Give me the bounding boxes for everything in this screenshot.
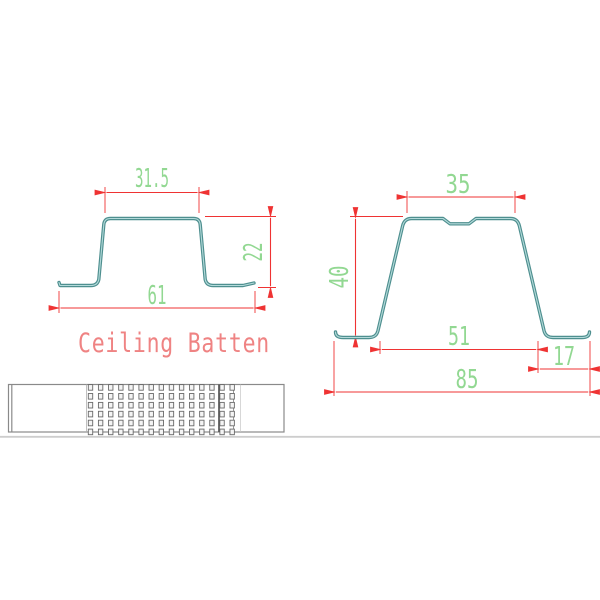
strip-outline	[9, 385, 285, 433]
dim-text-top-width-right: 35	[446, 170, 471, 200]
perforation-slot	[109, 429, 113, 435]
perforation-slot	[179, 420, 183, 426]
perforation-slot	[169, 429, 173, 435]
dim-text-bottom-width-left: 61	[148, 281, 167, 311]
dim-text-inner-width-right: 51	[448, 322, 470, 352]
perforation-slot	[139, 420, 143, 426]
perforation-slot	[200, 420, 204, 426]
perforation-slot	[129, 420, 133, 426]
perforation-slot	[88, 411, 92, 417]
perforation-slot	[220, 394, 224, 400]
perforation-slot	[139, 411, 143, 417]
perforation-slot	[149, 402, 153, 408]
perforation-slot	[98, 394, 102, 400]
technical-drawing: 31.5 22 61 35 40 51 17 85 Ceiling Batten	[0, 0, 600, 600]
perforation-slot	[169, 420, 173, 426]
perforation-slot	[220, 411, 224, 417]
left-profile-outline	[59, 219, 254, 286]
perforation-slot	[230, 429, 234, 435]
perforation-slot	[200, 394, 204, 400]
perforation-slot	[210, 420, 214, 426]
perforation-slot	[179, 385, 183, 391]
left-profile-core	[59, 219, 254, 286]
perforation-slot	[149, 385, 153, 391]
perforation-slot	[109, 394, 113, 400]
perforation-slot	[210, 402, 214, 408]
perforation-slot	[98, 420, 102, 426]
perforation-slot	[230, 411, 234, 417]
perforation-slot	[169, 402, 173, 408]
perforation-slot	[179, 429, 183, 435]
perforation-slot	[169, 394, 173, 400]
perforation-slot	[139, 385, 143, 391]
perforation-slot	[109, 402, 113, 408]
perforation-slot	[139, 394, 143, 400]
perforation-slot	[129, 411, 133, 417]
perforation-slot	[109, 411, 113, 417]
perforation-slot	[149, 394, 153, 400]
perforation-slot	[220, 385, 224, 391]
perforation-slot	[109, 385, 113, 391]
perforation-slot	[179, 394, 183, 400]
perforation-slot	[169, 411, 173, 417]
perforation-slot	[230, 402, 234, 408]
perforation-slot	[159, 420, 163, 426]
perforation-slot	[149, 429, 153, 435]
left-profile-caption: Ceiling Batten	[78, 328, 270, 359]
perforation-slot	[149, 420, 153, 426]
perforation-slot	[220, 420, 224, 426]
perforation-slot	[210, 394, 214, 400]
perforation-slot	[159, 385, 163, 391]
perforation-slot	[98, 402, 102, 408]
dim-text-total-width-right: 85	[456, 365, 479, 395]
perforation-slot	[220, 429, 224, 435]
perforation-slot	[179, 411, 183, 417]
perforation-slot	[139, 429, 143, 435]
perforation-slot	[149, 411, 153, 417]
perforation-slot	[190, 385, 194, 391]
perforation-slot	[88, 385, 92, 391]
perforation-slot	[88, 402, 92, 408]
perforation-slot	[200, 429, 204, 435]
perforation-slot	[129, 394, 133, 400]
perforation-slot	[230, 385, 234, 391]
perforated-strip-plan-view	[9, 385, 285, 435]
right-profile-core	[336, 219, 590, 338]
perforation-slot	[159, 402, 163, 408]
perforation-slot	[159, 394, 163, 400]
perforation-slot	[159, 429, 163, 435]
perforation-slot	[119, 402, 123, 408]
perforation-slot	[98, 411, 102, 417]
perforation-slot	[210, 429, 214, 435]
perforation-slot	[119, 420, 123, 426]
perforation-slot	[159, 411, 163, 417]
perforation-slot	[230, 420, 234, 426]
perforation-slot	[119, 411, 123, 417]
perforation-slot	[98, 385, 102, 391]
perforation-slot	[88, 420, 92, 426]
perforation-slot	[210, 411, 214, 417]
perforation-slot	[119, 429, 123, 435]
perforation-slot	[230, 394, 234, 400]
perforation-slot	[190, 420, 194, 426]
perforation-slot	[88, 429, 92, 435]
perforation-slot	[88, 394, 92, 400]
perforation-slot	[129, 429, 133, 435]
right-profile-outline	[336, 219, 590, 338]
perforation-slot	[129, 385, 133, 391]
perforation-slot	[190, 394, 194, 400]
perforation-slot	[200, 402, 204, 408]
perforation-slot	[119, 385, 123, 391]
perforation-slot	[129, 402, 133, 408]
perforation-slot	[179, 402, 183, 408]
perforation-slot	[190, 429, 194, 435]
perforation-slot	[169, 385, 173, 391]
dim-text-flange-right: 17	[553, 342, 575, 372]
perforation-slot	[109, 420, 113, 426]
dim-text-height-right: 40	[325, 266, 355, 289]
perforation-slot	[200, 411, 204, 417]
perforation-slot	[119, 394, 123, 400]
dim-text-top-width-left: 31.5	[135, 164, 169, 194]
perforation-slot	[200, 385, 204, 391]
perforation-slot	[190, 411, 194, 417]
perforation-slot	[190, 402, 194, 408]
perforation-slot	[98, 429, 102, 435]
drawing-canvas: 31.5 22 61 35 40 51 17 85 Ceiling Batten	[0, 0, 600, 600]
dim-text-height-left: 22	[239, 243, 269, 262]
perforation-slot	[220, 402, 224, 408]
perforation-slot	[139, 402, 143, 408]
perforation-slot	[210, 385, 214, 391]
